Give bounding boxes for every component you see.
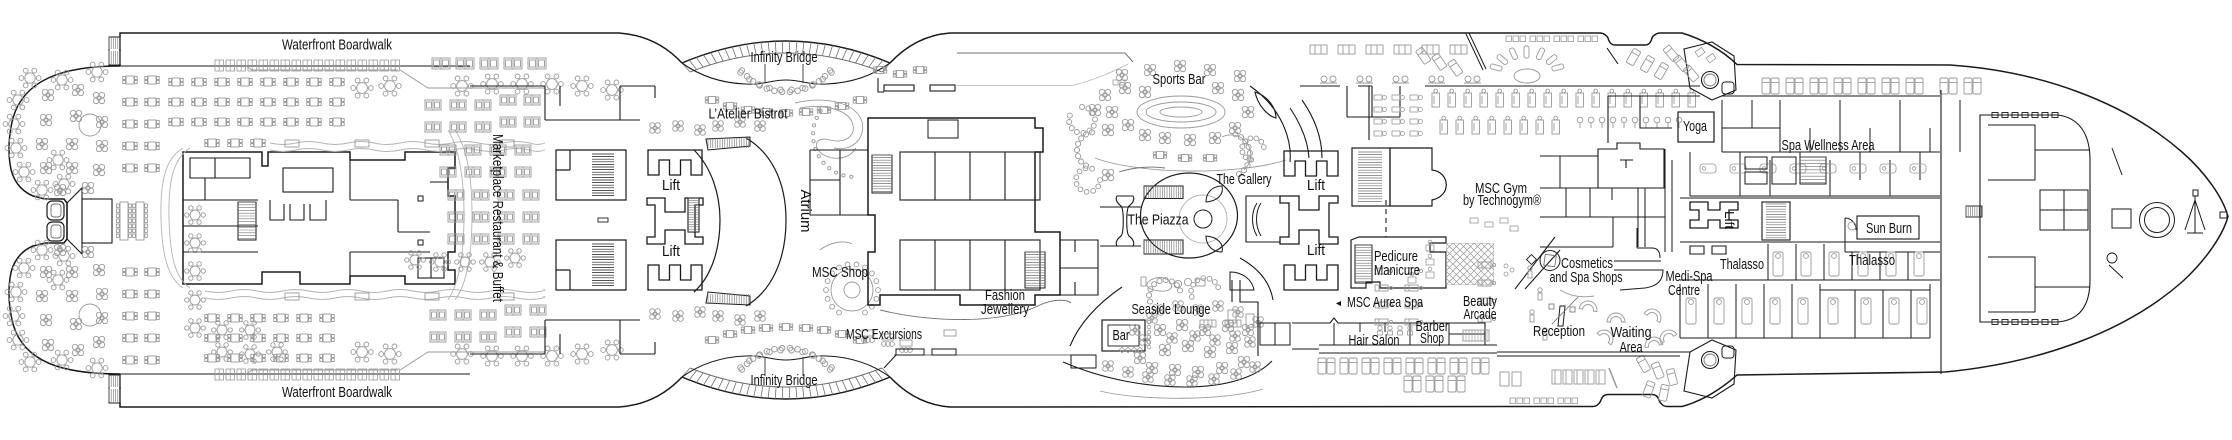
svg-text:Lift: Lift xyxy=(662,243,681,260)
svg-text:Lift: Lift xyxy=(1722,211,1737,229)
svg-text:Thalasso: Thalasso xyxy=(1720,256,1764,273)
svg-text:Atrium: Atrium xyxy=(797,190,814,233)
svg-text:Reception: Reception xyxy=(1533,323,1585,340)
svg-text:Jewellery: Jewellery xyxy=(981,301,1029,318)
svg-text:Centre: Centre xyxy=(1668,282,1700,299)
svg-text:Yoga: Yoga xyxy=(1683,118,1707,135)
svg-text:Waterfront Boardwalk: Waterfront Boardwalk xyxy=(282,37,392,54)
svg-text:Arcade: Arcade xyxy=(1464,306,1497,323)
svg-text:Lift: Lift xyxy=(662,177,681,194)
svg-text:Manicure: Manicure xyxy=(1374,262,1420,279)
svg-text:Thalasso: Thalasso xyxy=(1849,252,1895,269)
svg-text:MSC Aurea Spa: MSC Aurea Spa xyxy=(1347,294,1423,311)
svg-text:Waterfront Boardwalk: Waterfront Boardwalk xyxy=(282,384,392,401)
svg-text:Shop: Shop xyxy=(1420,330,1444,347)
svg-text:Area: Area xyxy=(1620,339,1643,356)
svg-text:L’Atelier Bistrot: L’Atelier Bistrot xyxy=(709,106,789,123)
svg-text:MSC Shop: MSC Shop xyxy=(812,264,868,281)
svg-text:Infinity Bridge: Infinity Bridge xyxy=(751,49,818,66)
svg-text:Lift: Lift xyxy=(1307,242,1326,259)
svg-text:Bar: Bar xyxy=(1113,327,1130,344)
svg-text:Lift: Lift xyxy=(1307,177,1326,194)
svg-text:Sports Bar: Sports Bar xyxy=(1153,71,1206,88)
svg-text:Seaside Lounge: Seaside Lounge xyxy=(1132,301,1211,318)
svg-text:Marketplace Restaurant & Buffe: Marketplace Restaurant & Buffet xyxy=(489,134,506,303)
svg-text:Hair Salon: Hair Salon xyxy=(1349,332,1400,349)
svg-text:MSC Excursions: MSC Excursions xyxy=(846,326,922,343)
svg-text:The Gallery: The Gallery xyxy=(1217,171,1272,188)
svg-text:The Piazza: The Piazza xyxy=(1128,212,1190,229)
svg-text:by Technogym®: by Technogym® xyxy=(1463,192,1541,209)
svg-text:Sun Burn: Sun Burn xyxy=(1866,220,1912,237)
svg-text:Spa Wellness Area: Spa Wellness Area xyxy=(1782,137,1875,154)
svg-text:Infinity Bridge: Infinity Bridge xyxy=(751,372,818,389)
svg-text:and Spa Shops: and Spa Shops xyxy=(1550,269,1623,286)
